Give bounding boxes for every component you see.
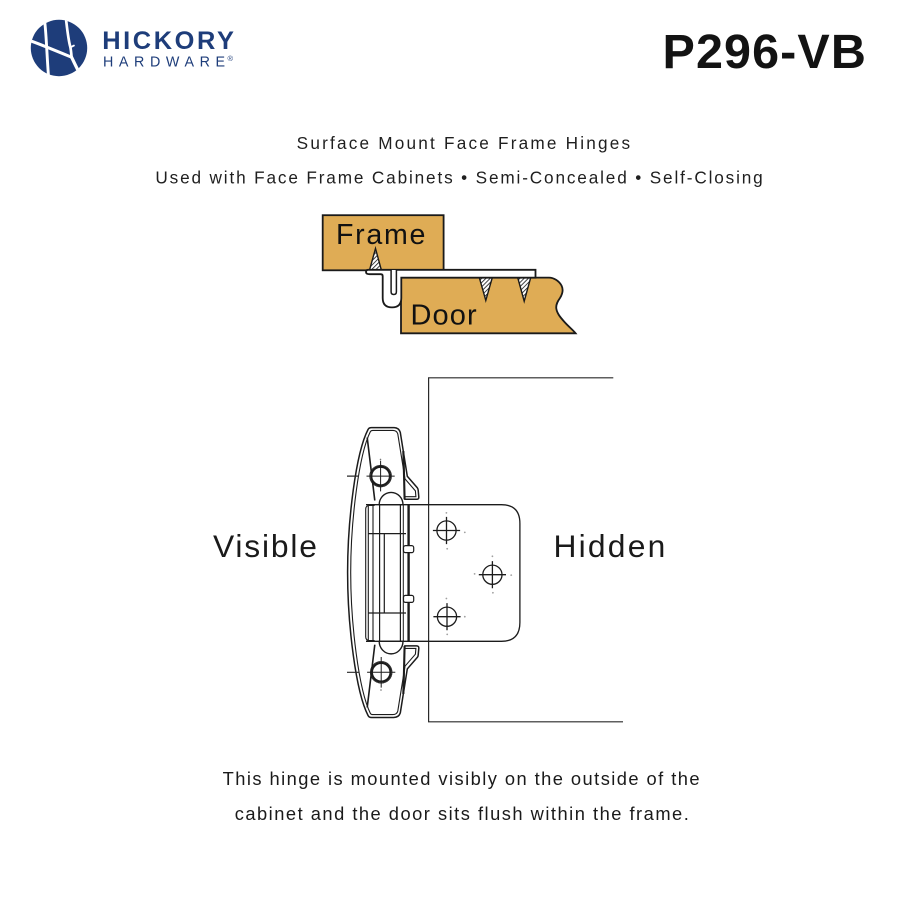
- svg-text:HICKORY: HICKORY: [102, 27, 236, 55]
- svg-text:®: ®: [228, 54, 234, 63]
- svg-text:Frame: Frame: [336, 219, 427, 251]
- svg-text:HARDWARE: HARDWARE: [103, 54, 231, 70]
- svg-text:Surface Mount Face Frame Hinge: Surface Mount Face Frame Hinges: [297, 133, 633, 153]
- svg-text:Used with Face Frame Cabinets: Used with Face Frame Cabinets • Semi-Con…: [155, 168, 764, 188]
- svg-text:P296-VB: P296-VB: [663, 25, 868, 79]
- svg-text:Hidden: Hidden: [554, 528, 668, 564]
- svg-text:Door: Door: [411, 299, 478, 331]
- svg-text:Visible: Visible: [213, 528, 319, 564]
- svg-text:cabinet and the door sits flus: cabinet and the door sits flush within t…: [235, 803, 691, 824]
- svg-text:This hinge is mounted visibly: This hinge is mounted visibly on the out…: [223, 768, 701, 789]
